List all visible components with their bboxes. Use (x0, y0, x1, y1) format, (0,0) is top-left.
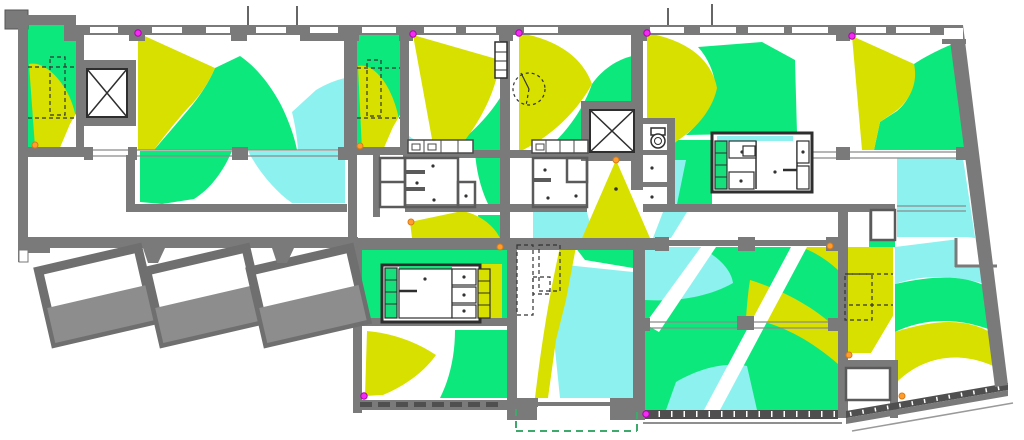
window-slit (362, 27, 396, 33)
wall-entry-chunk (610, 398, 635, 407)
counter-sink (536, 144, 544, 150)
glass-post (338, 147, 348, 160)
window-slit (310, 27, 338, 33)
glass-post (738, 237, 755, 251)
door-dot (464, 194, 467, 197)
cone-center-dot (614, 187, 618, 191)
sensor-orange (408, 219, 414, 225)
glass-post (828, 318, 838, 331)
window-slit (206, 27, 230, 33)
door-dot (415, 181, 418, 184)
wardrobe-bedroom-a (495, 42, 507, 78)
stair-cell (846, 368, 890, 400)
window-slit (856, 27, 886, 33)
wall-x633-low (633, 238, 645, 420)
wall-room2-left-low (348, 147, 357, 250)
window-dash (450, 402, 462, 407)
door-dot (432, 198, 435, 201)
counter-sink (428, 144, 436, 150)
sensor-orange (899, 393, 905, 399)
wall-cap-bl (19, 250, 28, 262)
wall-room1-top (18, 15, 76, 25)
sensor-magenta (849, 33, 855, 39)
sensor-orange (846, 352, 852, 358)
wall-left-outer (18, 15, 28, 262)
sensor-magenta (644, 30, 650, 36)
door-dot (546, 196, 549, 199)
bath-b-stub (533, 178, 551, 182)
window-dash (414, 402, 426, 407)
counter-sink (412, 144, 420, 150)
wall-corridor-left-h (126, 204, 347, 212)
window-slit (152, 27, 182, 33)
glass-post (232, 147, 248, 160)
glass-post (655, 237, 669, 251)
sensor-orange (497, 244, 503, 250)
door-dot (423, 277, 426, 280)
bath-a-stub (405, 187, 425, 191)
pod-2-closet (385, 268, 397, 318)
window-dash (396, 402, 408, 407)
door-dot (431, 164, 434, 167)
sensor-orange (827, 243, 833, 249)
door-dot (543, 168, 546, 171)
glass-post (737, 316, 754, 330)
wall-mid-left (18, 147, 84, 157)
window-slit (424, 27, 456, 33)
door-dot (801, 150, 804, 153)
floor-plan-canvas (0, 0, 1024, 440)
door-dot (650, 195, 653, 198)
window-slit (748, 27, 784, 33)
sensor-magenta (643, 411, 649, 417)
window-slit (650, 27, 684, 33)
floor-plan-viewport (0, 0, 1024, 440)
door-dot (773, 170, 776, 173)
window-slit (700, 27, 736, 33)
sensor-orange (32, 142, 38, 148)
wall-post (231, 25, 247, 41)
door-dot (462, 275, 465, 278)
wall-room2-left (348, 25, 357, 150)
toilet-bowl (651, 134, 665, 148)
sensor-magenta (361, 393, 367, 399)
window-dash (468, 402, 480, 407)
window-slit (524, 27, 558, 33)
bath-a-stub (405, 170, 425, 174)
window-dash (432, 402, 444, 407)
door-dot (462, 293, 465, 296)
window-slit (896, 27, 930, 33)
sensor-orange (613, 157, 619, 163)
wall-entry-post (610, 407, 634, 420)
door-dot (650, 166, 653, 169)
wall-corridor-b (665, 204, 895, 212)
glass-post (836, 147, 850, 160)
sensor-magenta (410, 31, 416, 37)
wall-room2-bottom (348, 147, 409, 155)
glass-post (84, 147, 93, 160)
wall-corridor-left-v (126, 155, 135, 212)
wall-wc (643, 204, 667, 212)
window-slit (466, 27, 496, 33)
window-dash (360, 402, 372, 407)
corridor-cell (871, 210, 895, 240)
wall-wc (643, 118, 669, 124)
window-dash (378, 402, 390, 407)
wall-wc (667, 118, 675, 208)
window-dash (486, 402, 498, 407)
wall-notch-topright (942, 39, 966, 44)
pod-1-cell (743, 146, 755, 156)
sensor-orange (357, 143, 363, 149)
wall-band-bottomleft (18, 237, 358, 248)
wall-bigroom-step (300, 33, 348, 41)
pod-1-cell (797, 166, 809, 189)
cone-cyan-corridor-right (897, 158, 975, 237)
pod-1-glass (717, 136, 793, 141)
wall-entry-chunk (510, 398, 538, 407)
door-dot (740, 150, 743, 153)
sensor-magenta (135, 30, 141, 36)
wall-x507-low (507, 238, 517, 420)
wall-entry-thin (537, 402, 610, 406)
wall-post (836, 25, 850, 41)
white-notch-topright (944, 28, 963, 40)
window-slit (792, 27, 828, 33)
window-slit (90, 27, 118, 33)
door-dot (462, 309, 465, 312)
sensor-magenta (516, 30, 522, 36)
pod-2-room (399, 269, 452, 318)
wall-room2-right (400, 25, 409, 150)
wall-wc (643, 150, 667, 155)
door-dot (739, 179, 742, 182)
door-dot (574, 194, 577, 197)
window-slit (256, 27, 286, 33)
wall-wc (643, 182, 667, 187)
